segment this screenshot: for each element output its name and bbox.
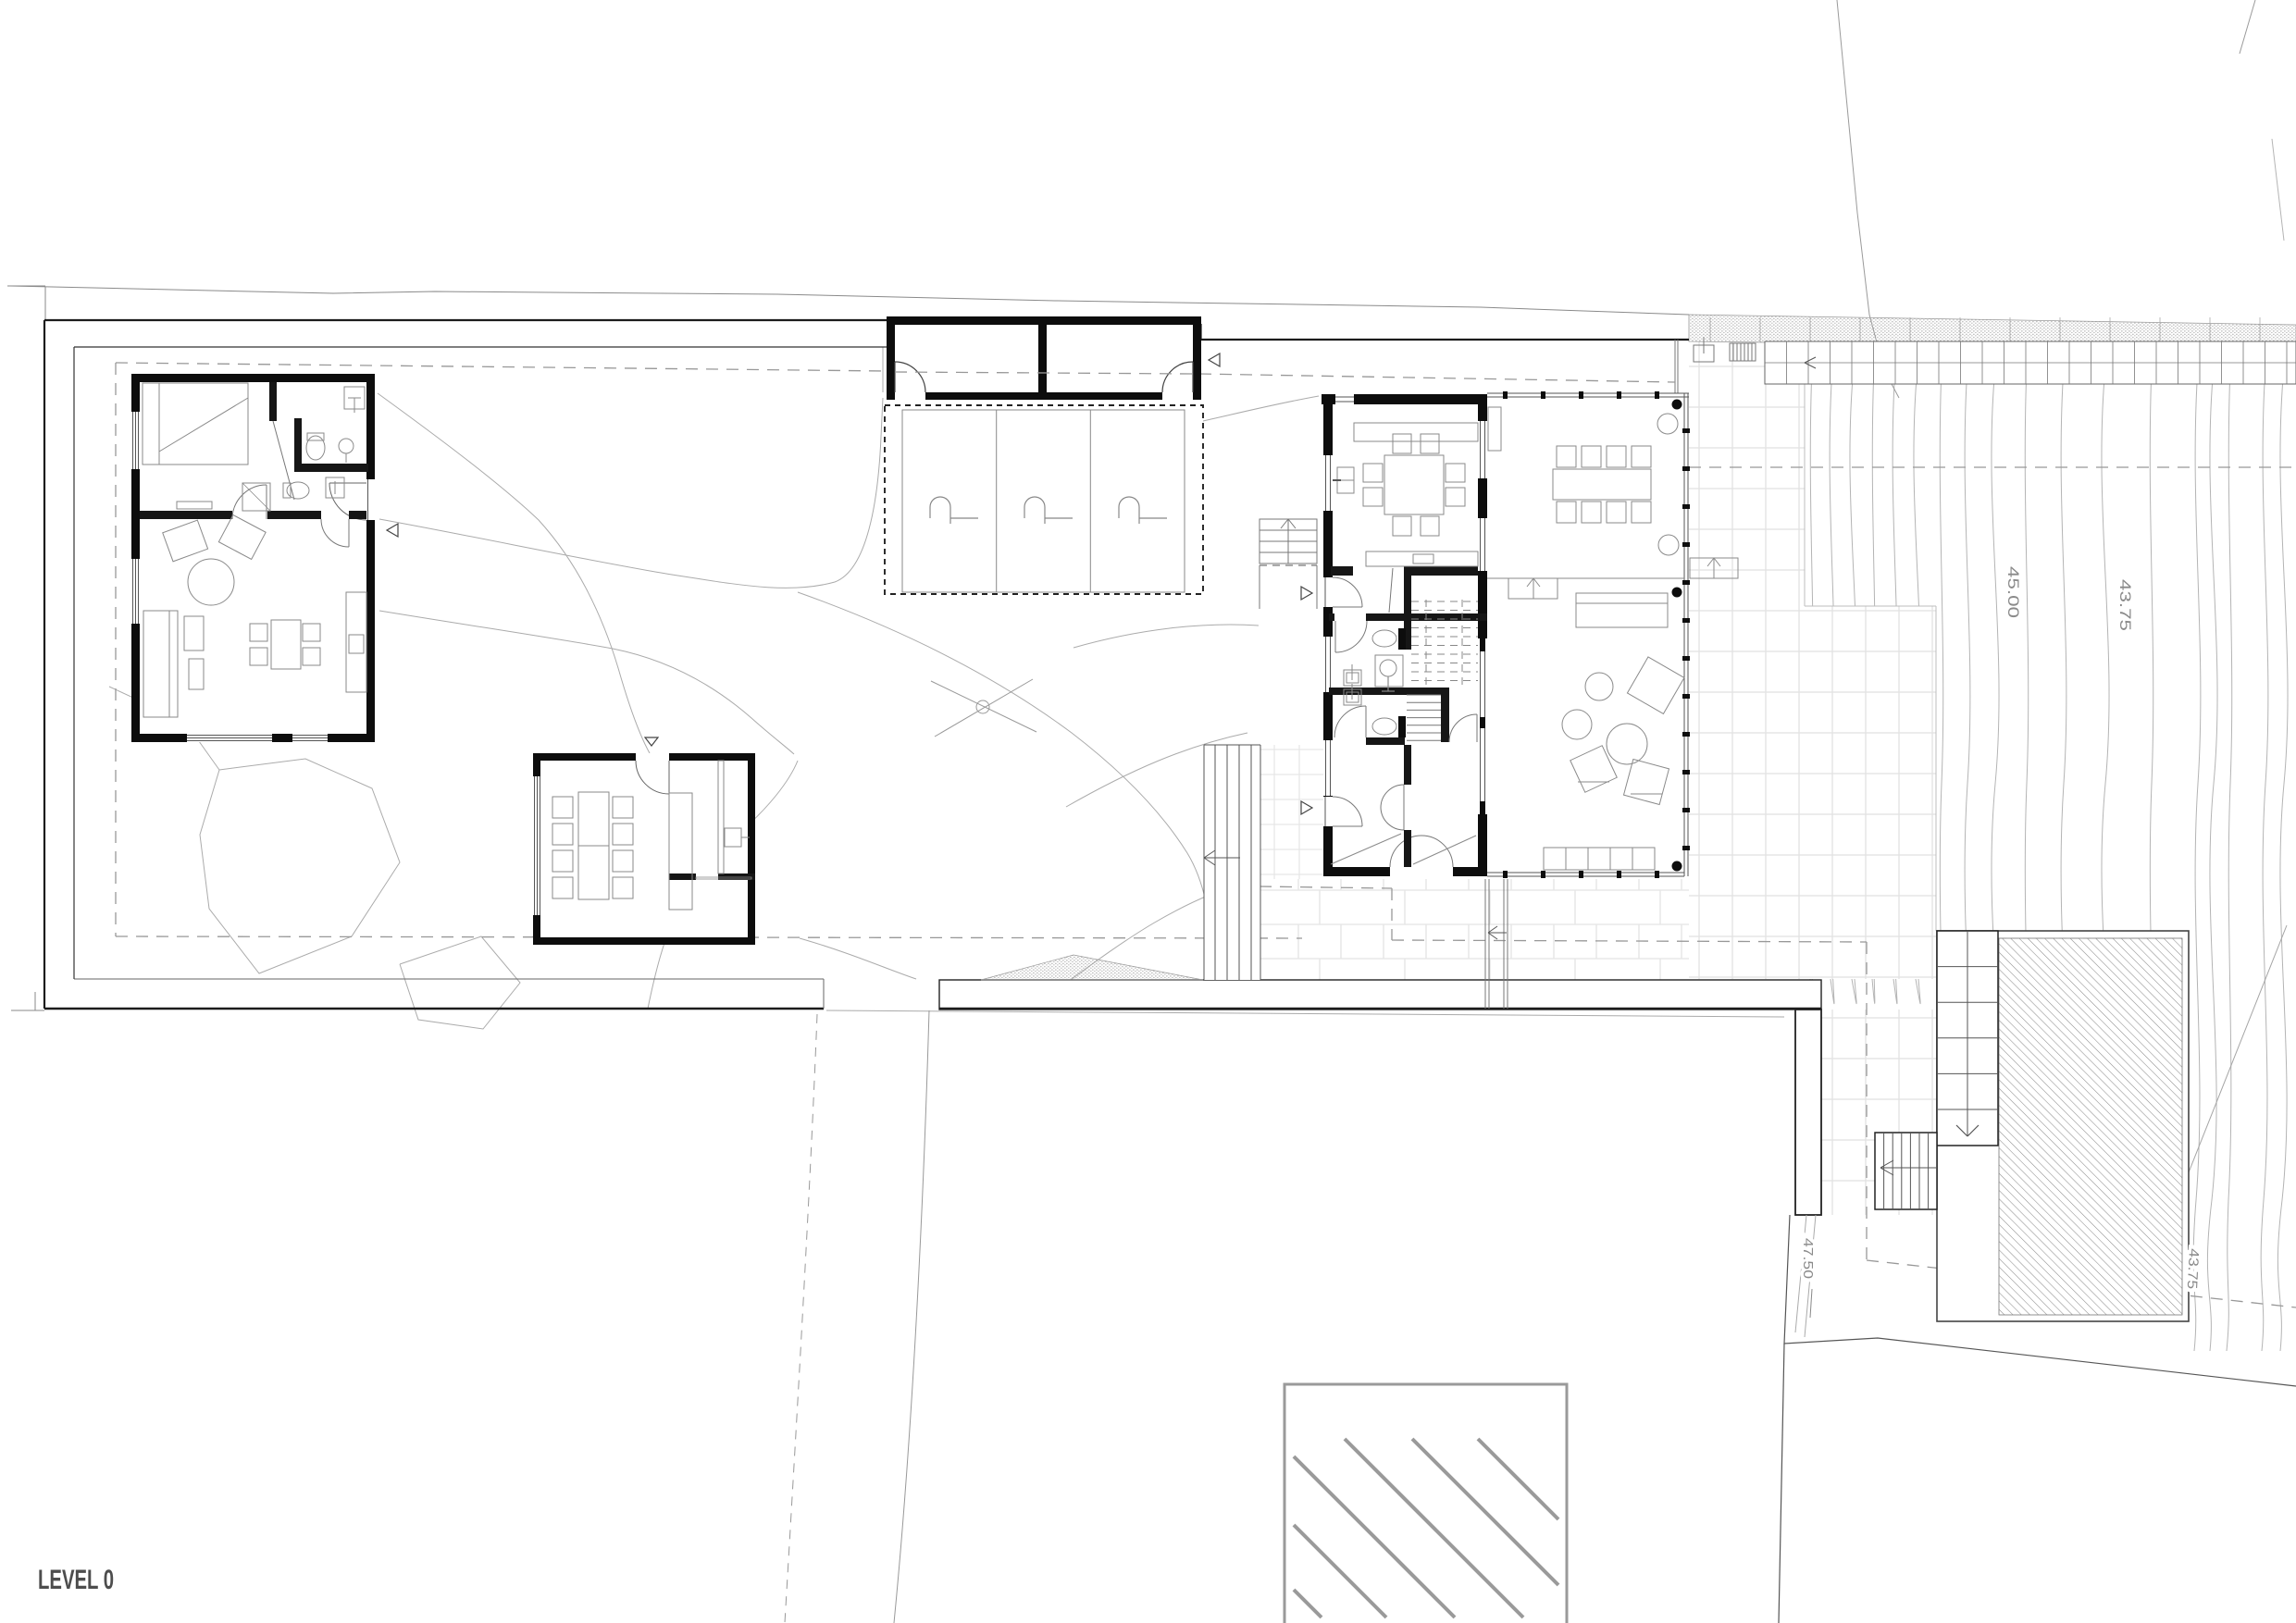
- svg-text:47.50: 47.50: [1800, 1238, 1816, 1279]
- svg-text:LEVEL 0: LEVEL 0: [38, 1565, 114, 1595]
- svg-text:45.00: 45.00: [2004, 566, 2022, 618]
- svg-text:43.75: 43.75: [2184, 1248, 2202, 1290]
- svg-text:43.75: 43.75: [2116, 579, 2134, 631]
